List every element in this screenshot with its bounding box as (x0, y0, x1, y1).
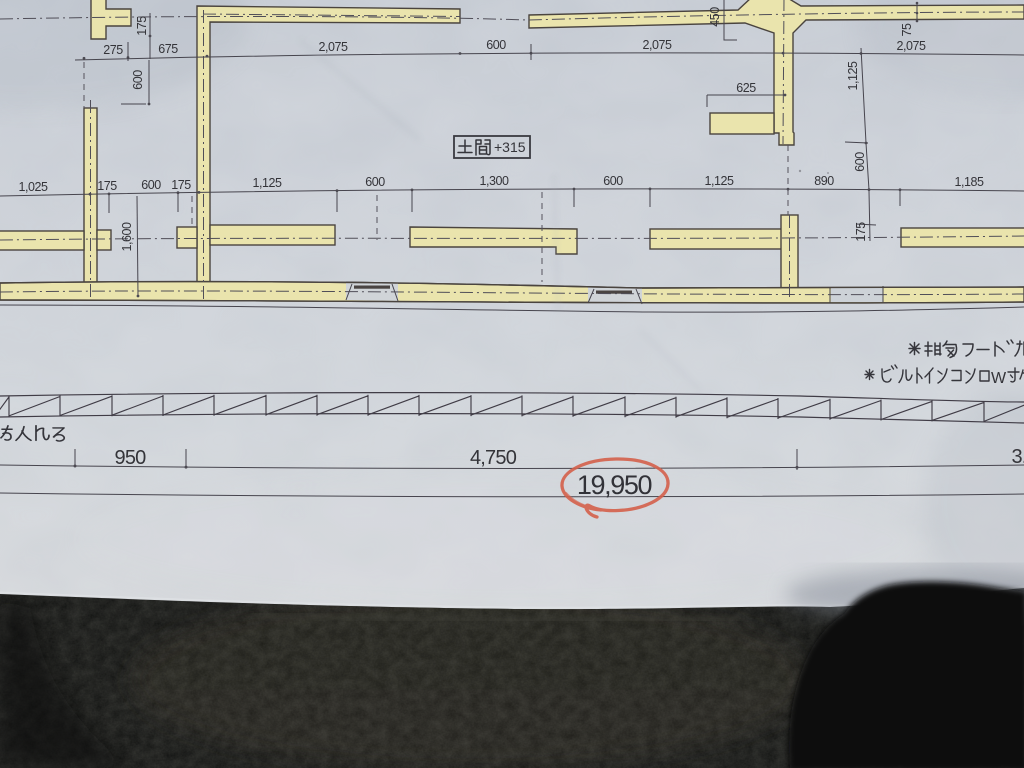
svg-text:675: 675 (158, 42, 178, 56)
svg-text:1,125: 1,125 (846, 61, 860, 91)
svg-text:175: 175 (135, 16, 149, 36)
svg-text:600: 600 (141, 178, 161, 192)
svg-text:950: 950 (115, 447, 147, 469)
svg-text:4,750: 4,750 (470, 447, 517, 469)
svg-text:1,025: 1,025 (18, 180, 48, 194)
svg-text:2,075: 2,075 (896, 39, 926, 53)
svg-text:19,950: 19,950 (577, 470, 652, 500)
svg-text:1,600: 1,600 (120, 222, 134, 252)
svg-text:75: 75 (900, 23, 914, 37)
svg-text:600: 600 (131, 70, 145, 90)
svg-text:625: 625 (736, 81, 756, 95)
svg-text:600: 600 (365, 175, 385, 189)
svg-text:1,185: 1,185 (954, 175, 984, 189)
svg-text:1,125: 1,125 (704, 174, 734, 188)
svg-text:3,: 3, (1011, 446, 1024, 468)
svg-text:600: 600 (603, 174, 623, 188)
svg-text:W: W (991, 370, 1007, 387)
svg-text:600: 600 (486, 38, 506, 52)
svg-text:275: 275 (103, 43, 123, 57)
svg-text:2,075: 2,075 (642, 38, 672, 52)
svg-text:1,300: 1,300 (479, 174, 509, 188)
svg-text:1,125: 1,125 (252, 176, 282, 190)
svg-text:450: 450 (708, 7, 722, 27)
svg-text:2,075: 2,075 (318, 40, 348, 54)
svg-text:175: 175 (171, 178, 191, 192)
svg-text:890: 890 (814, 174, 834, 188)
svg-text:175: 175 (854, 222, 868, 242)
svg-text:+315: +315 (494, 139, 526, 155)
svg-text:600: 600 (853, 152, 867, 172)
svg-text:175: 175 (97, 179, 117, 193)
